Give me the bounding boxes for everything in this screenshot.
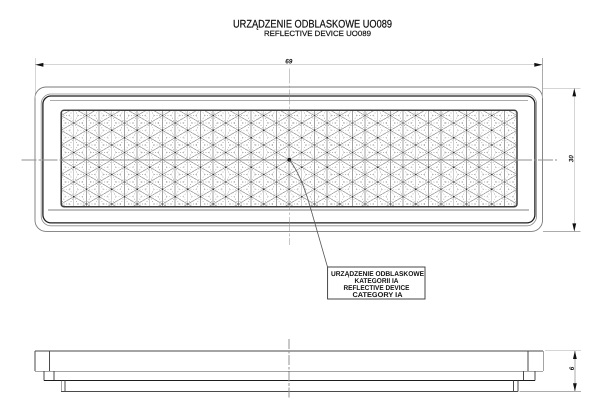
svg-text:KATEGORII IA: KATEGORII IA (355, 278, 399, 285)
svg-text:URZĄDZENIE ODBLASKOWE: URZĄDZENIE ODBLASKOWE (331, 271, 424, 278)
svg-text:REFLECTIVE DEVICE UO089: REFLECTIVE DEVICE UO089 (264, 29, 371, 38)
svg-text:CATEGORY IA: CATEGORY IA (353, 292, 403, 299)
svg-text:REFLECTIVE DEVICE: REFLECTIVE DEVICE (344, 285, 410, 292)
